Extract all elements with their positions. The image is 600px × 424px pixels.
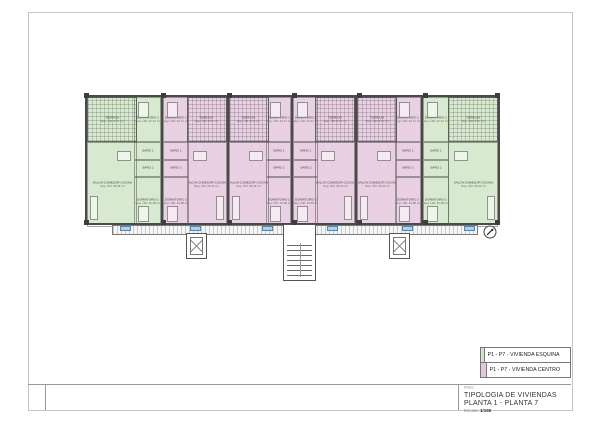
room-dormitorio-2: DORMITORIO 2Sup. Útil: 10.38 m²	[395, 177, 421, 227]
vivienda-centro-2: TERRAZASup. Útil: 8.27 m²DORMITORIO 1Sup…	[229, 97, 293, 223]
room-terraza: TERRAZASup. Útil: 8.27 m²	[229, 97, 269, 142]
furniture-bed-icon	[138, 102, 149, 118]
gallery-access-tag	[262, 226, 273, 231]
room-label: BAÑO 2	[300, 167, 311, 170]
room-label: DORMITORIO 2Sup. Útil: 10.38 m²	[293, 199, 318, 206]
room-label: BAÑO 1	[171, 149, 182, 152]
vivienda-esquina-1: TERRAZASup. Útil: 8.27 m²DORMITORIO 1Sup…	[87, 97, 163, 223]
furniture-kitchen-icon	[232, 196, 240, 220]
elevator-core-left	[186, 233, 207, 259]
room-dormitorio-2: DORMITORIO 2Sup. Útil: 10.38 m²	[163, 177, 189, 227]
room-terraza: TERRAZASup. Útil: 8.27 m²	[187, 97, 227, 142]
furniture-bed-icon	[297, 102, 308, 118]
legend: P1 - P7 - VIVIENDA ESQUINA P1 - P7 - VIV…	[480, 347, 571, 378]
gallery-access-tag	[190, 226, 201, 231]
room-label: SALON-COMEDOR-COCINASup. Útil: 26.41 m²	[229, 181, 269, 188]
room-terraza: TERRAZASup. Útil: 8.27 m²	[357, 97, 397, 142]
furniture-bed-icon	[167, 206, 178, 222]
room-salon-comedor-cocina: SALON-COMEDOR-COCINASup. Útil: 26.41 m²	[229, 142, 269, 227]
room-dormitorio-1: DORMITORIO 1Sup. Útil: 12.17 m²	[395, 97, 421, 142]
room-dormitorio-1: DORMITORIO 1Sup. Útil: 12.17 m²	[163, 97, 189, 142]
column	[292, 93, 297, 98]
title-band: Plano: TIPOLOGIA DE VIVIENDAS PLANTA 1 -…	[28, 384, 571, 410]
room-dormitorio-1: DORMITORIO 1Sup. Útil: 12.17 m²	[266, 97, 291, 142]
room-label: TERRAZASup. Útil: 8.27 m²	[100, 116, 123, 123]
drawing-sheet: TERRAZASup. Útil: 8.27 m²DORMITORIO 1Sup…	[0, 0, 600, 424]
vivienda-esquina-2: TERRAZASup. Útil: 8.27 m²DORMITORIO 1Sup…	[423, 97, 498, 223]
furniture-table-icon	[377, 151, 391, 161]
room-dormitorio-1: DORMITORIO 1Sup. Útil: 12.17 m²	[293, 97, 318, 142]
furniture-table-icon	[454, 151, 468, 161]
furniture-bed-icon	[138, 206, 149, 222]
furniture-table-icon	[249, 151, 263, 161]
room-label: SALON-COMEDOR-COCINASup. Útil: 26.41 m²	[187, 181, 227, 188]
room-bano-2: BAÑO 2	[266, 160, 291, 177]
furniture-bed-icon	[427, 102, 438, 118]
room-dormitorio-1: DORMITORIO 1Sup. Útil: 12.17 m²	[423, 97, 449, 142]
room-label: BAÑO 1	[142, 149, 153, 152]
legend-item-centro: P1 - P7 - VIVIENDA CENTRO	[481, 362, 570, 377]
column	[423, 93, 428, 98]
furniture-kitchen-icon	[90, 196, 98, 220]
room-bano-1: BAÑO 1	[395, 142, 421, 160]
furniture-bed-icon	[270, 102, 281, 118]
furniture-bed-icon	[270, 206, 281, 222]
sheet-title-line1: TIPOLOGIA DE VIVIENDAS	[464, 392, 571, 400]
legend-label: P1 - P7 - VIVIENDA CENTRO	[487, 364, 560, 376]
room-label: DORMITORIO 2Sup. Útil: 10.38 m²	[423, 199, 448, 206]
gallery-access-tag	[120, 226, 131, 231]
room-bano-2: BAÑO 2	[134, 160, 161, 177]
stair-core-center	[283, 224, 316, 281]
column	[357, 220, 362, 225]
room-salon-comedor-cocina: SALON-COMEDOR-COCINASup. Útil: 26.41 m²	[315, 142, 355, 227]
elevator-icon	[393, 237, 406, 255]
furniture-bed-icon	[399, 102, 410, 118]
room-label: TERRAZASup. Útil: 8.27 m²	[324, 116, 347, 123]
furniture-bed-icon	[427, 206, 438, 222]
room-label: BAÑO 2	[273, 167, 284, 170]
gallery-access-tag	[402, 226, 413, 231]
elevator-icon	[190, 237, 203, 255]
furniture-bed-icon	[399, 206, 410, 222]
room-terraza: TERRAZASup. Útil: 8.27 m²	[87, 97, 137, 142]
room-terraza: TERRAZASup. Útil: 8.27 m²	[315, 97, 355, 142]
room-dormitorio-2: DORMITORIO 2Sup. Útil: 10.38 m²	[134, 177, 161, 227]
room-label: DORMITORIO 2Sup. Útil: 10.38 m²	[266, 199, 291, 206]
room-terraza: TERRAZASup. Útil: 8.27 m²	[448, 97, 498, 142]
room-bano-1: BAÑO 1	[423, 142, 449, 160]
room-label: DORMITORIO 2Sup. Útil: 10.38 m²	[135, 199, 160, 206]
furniture-kitchen-icon	[216, 196, 224, 220]
room-label: BAÑO 2	[430, 167, 441, 170]
column	[292, 220, 297, 225]
room-bano-1: BAÑO 1	[266, 142, 291, 160]
room-label: SALON-COMEDOR-COCINASup. Útil: 26.41 m²	[92, 181, 132, 188]
room-label: DORMITORIO 2Sup. Útil: 10.38 m²	[395, 199, 420, 206]
title-block-field-label: Plano:	[464, 386, 528, 390]
furniture-bed-icon	[297, 206, 308, 222]
room-label: TERRAZASup. Útil: 8.27 m²	[237, 116, 260, 123]
room-bano-2: BAÑO 2	[395, 160, 421, 177]
room-label: DORMITORIO 2Sup. Útil: 10.38 m²	[164, 199, 189, 206]
room-label: BAÑO 2	[142, 167, 153, 170]
room-label: TERRAZASup. Útil: 8.27 m²	[366, 116, 389, 123]
column	[84, 220, 89, 225]
north-arrow-icon	[483, 225, 497, 239]
room-dormitorio-1: DORMITORIO 1Sup. Útil: 12.17 m²	[134, 97, 161, 142]
sheet-title-line2: PLANTA 1 - PLANTA 7	[464, 400, 571, 408]
column	[495, 220, 500, 225]
room-salon-comedor-cocina: SALON-COMEDOR-COCINASup. Útil: 26.41 m²	[87, 142, 137, 227]
room-label: SALON-COMEDOR-COCINASup. Útil: 26.41 m²	[358, 181, 398, 188]
elevator-core-right	[389, 233, 410, 259]
room-label: BAÑO 1	[273, 149, 284, 152]
room-bano-1: BAÑO 1	[134, 142, 161, 160]
room-salon-comedor-cocina: SALON-COMEDOR-COCINASup. Útil: 26.41 m²	[187, 142, 227, 227]
room-bano-1: BAÑO 1	[163, 142, 189, 160]
room-label: BAÑO 2	[171, 167, 182, 170]
room-label: BAÑO 1	[300, 149, 311, 152]
room-bano-2: BAÑO 2	[293, 160, 318, 177]
vivienda-centro-4: TERRAZASup. Útil: 8.27 m²DORMITORIO 1Sup…	[357, 97, 422, 223]
scale-note: Escala: 1/150	[464, 409, 544, 414]
column	[161, 220, 166, 225]
room-dormitorio-2: DORMITORIO 2Sup. Útil: 10.38 m²	[266, 177, 291, 227]
room-salon-comedor-cocina: SALON-COMEDOR-COCINASup. Útil: 26.41 m²	[448, 142, 498, 227]
room-label: BAÑO 2	[402, 167, 413, 170]
room-bano-2: BAÑO 2	[163, 160, 189, 177]
room-label: TERRAZASup. Útil: 8.27 m²	[195, 116, 218, 123]
gallery-access-tag	[464, 226, 475, 231]
column	[423, 220, 428, 225]
vivienda-centro-3: TERRAZASup. Útil: 8.27 m²DORMITORIO 1Sup…	[293, 97, 357, 223]
room-label: TERRAZASup. Útil: 8.27 m²	[461, 116, 484, 123]
furniture-table-icon	[321, 151, 335, 161]
column	[227, 93, 232, 98]
furniture-kitchen-icon	[344, 196, 352, 220]
column	[495, 93, 500, 98]
legend-item-esquina: P1 - P7 - VIVIENDA ESQUINA	[481, 348, 570, 362]
room-label: SALON-COMEDOR-COCINASup. Útil: 26.41 m²	[453, 181, 493, 188]
room-label: BAÑO 1	[430, 149, 441, 152]
furniture-kitchen-icon	[360, 196, 368, 220]
furniture-bed-icon	[167, 102, 178, 118]
column	[84, 93, 89, 98]
vivienda-centro-1: TERRAZASup. Útil: 8.27 m²DORMITORIO 1Sup…	[163, 97, 228, 223]
room-label: SALON-COMEDOR-COCINASup. Útil: 26.41 m²	[316, 181, 356, 188]
legend-label: P1 - P7 - VIVIENDA ESQUINA	[485, 349, 560, 361]
building-floor-plan: TERRAZASup. Útil: 8.27 m²DORMITORIO 1Sup…	[85, 95, 500, 225]
furniture-table-icon	[117, 151, 131, 161]
furniture-table-icon	[193, 151, 207, 161]
column	[227, 220, 232, 225]
furniture-kitchen-icon	[487, 196, 495, 220]
title-block: Plano: TIPOLOGIA DE VIVIENDAS PLANTA 1 -…	[458, 385, 571, 410]
room-bano-2: BAÑO 2	[423, 160, 449, 177]
room-bano-1: BAÑO 1	[293, 142, 318, 160]
column	[161, 93, 166, 98]
gallery-access-tag	[327, 226, 338, 231]
column	[357, 93, 362, 98]
room-salon-comedor-cocina: SALON-COMEDOR-COCINASup. Útil: 26.41 m²	[357, 142, 397, 227]
room-label: BAÑO 1	[402, 149, 413, 152]
